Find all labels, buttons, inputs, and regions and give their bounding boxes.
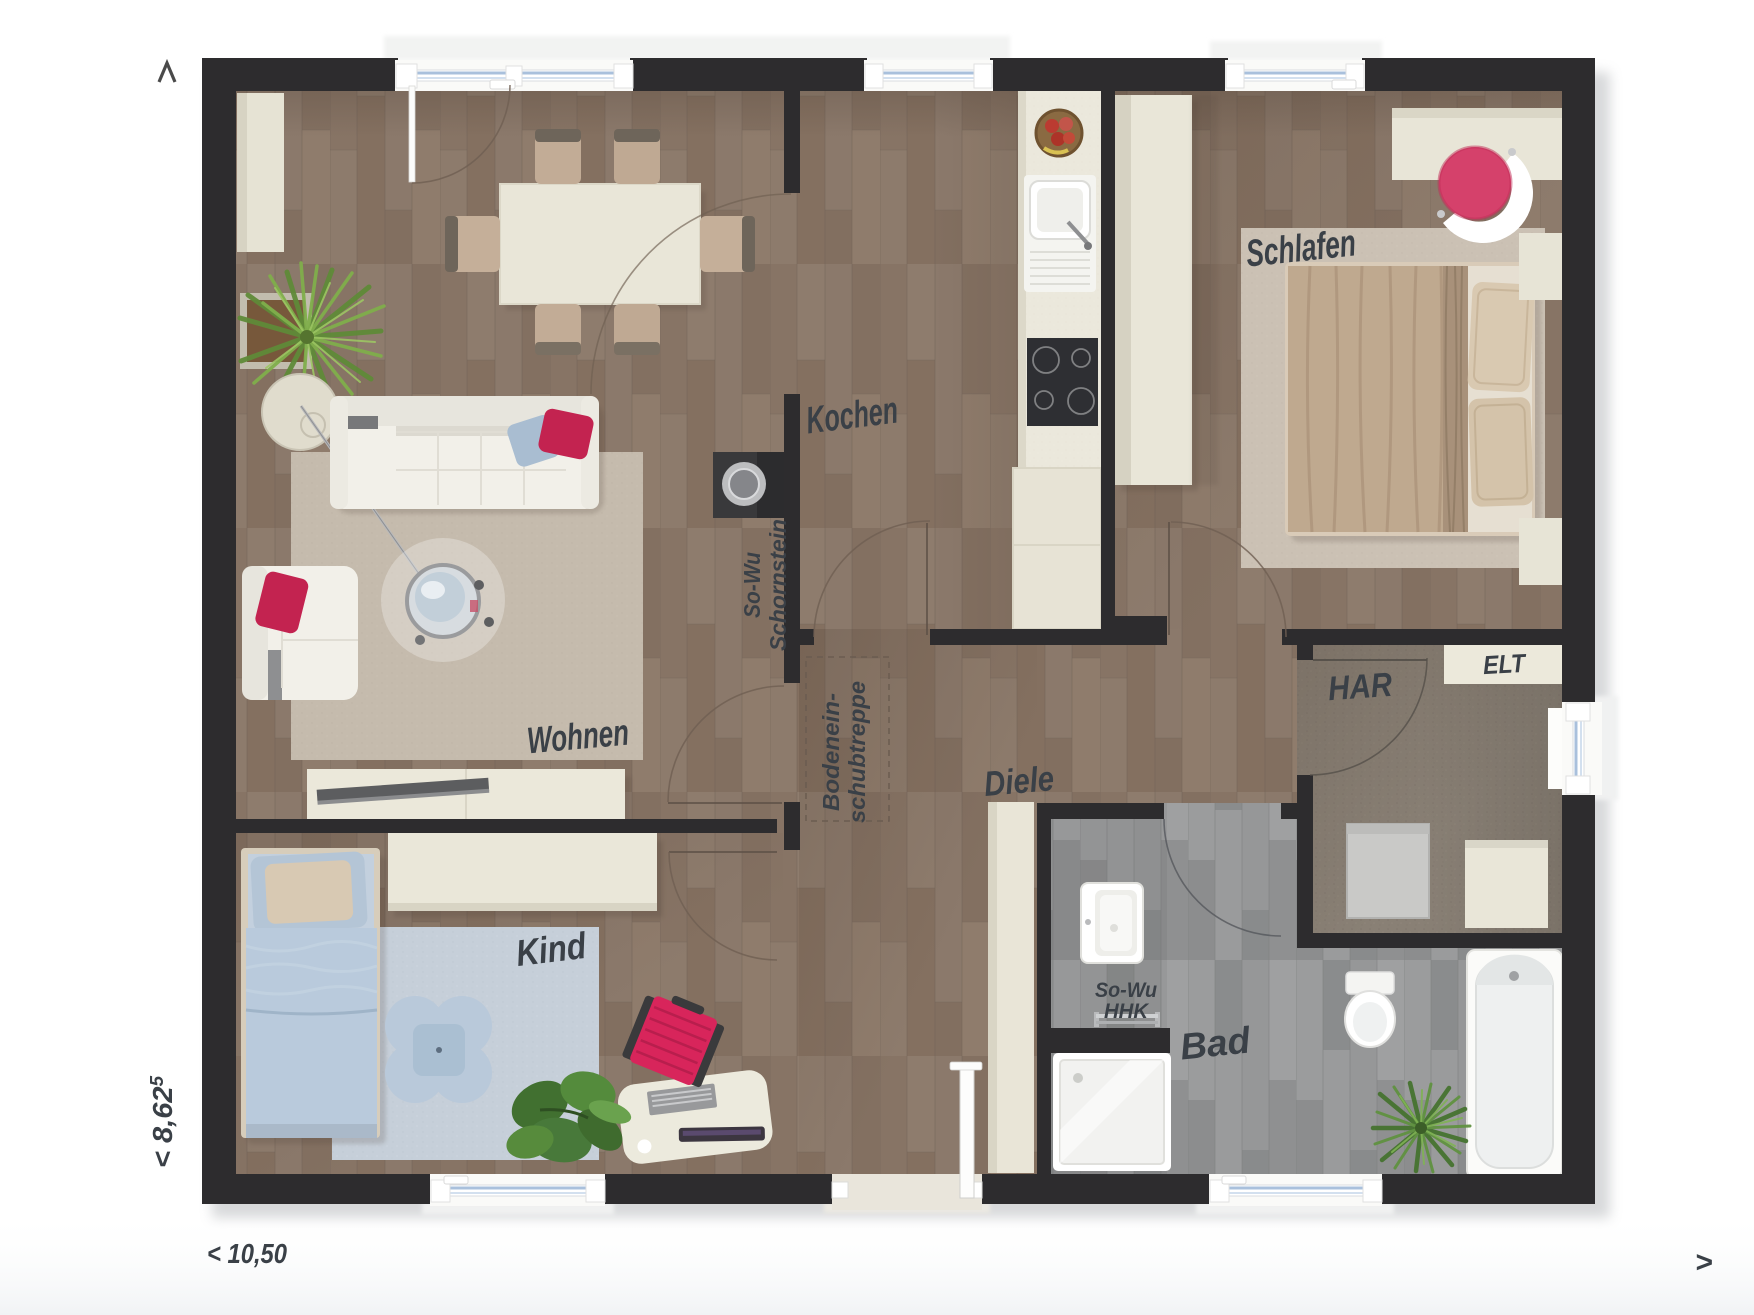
svg-text:< 10,50: < 10,50 xyxy=(207,1238,287,1269)
svg-text:HHK: HHK xyxy=(1104,1000,1150,1023)
svg-text:Bodenein-: Bodenein- xyxy=(818,693,844,811)
svg-text:>: > xyxy=(1695,1246,1713,1279)
svg-text:Schornstein: Schornstein xyxy=(765,519,791,651)
svg-text:Kind: Kind xyxy=(514,925,590,974)
svg-text:< 8,625: < 8,625 xyxy=(147,1075,178,1168)
svg-text:Bad: Bad xyxy=(1178,1019,1253,1067)
svg-text:So-Wu: So-Wu xyxy=(1095,979,1157,1002)
svg-text:HAR: HAR xyxy=(1327,666,1394,708)
svg-text:ELT: ELT xyxy=(1482,648,1527,680)
svg-text:schubtreppe: schubtreppe xyxy=(844,681,870,823)
svg-text:Diele: Diele xyxy=(982,759,1055,804)
svg-text:So-Wu: So-Wu xyxy=(739,552,765,618)
